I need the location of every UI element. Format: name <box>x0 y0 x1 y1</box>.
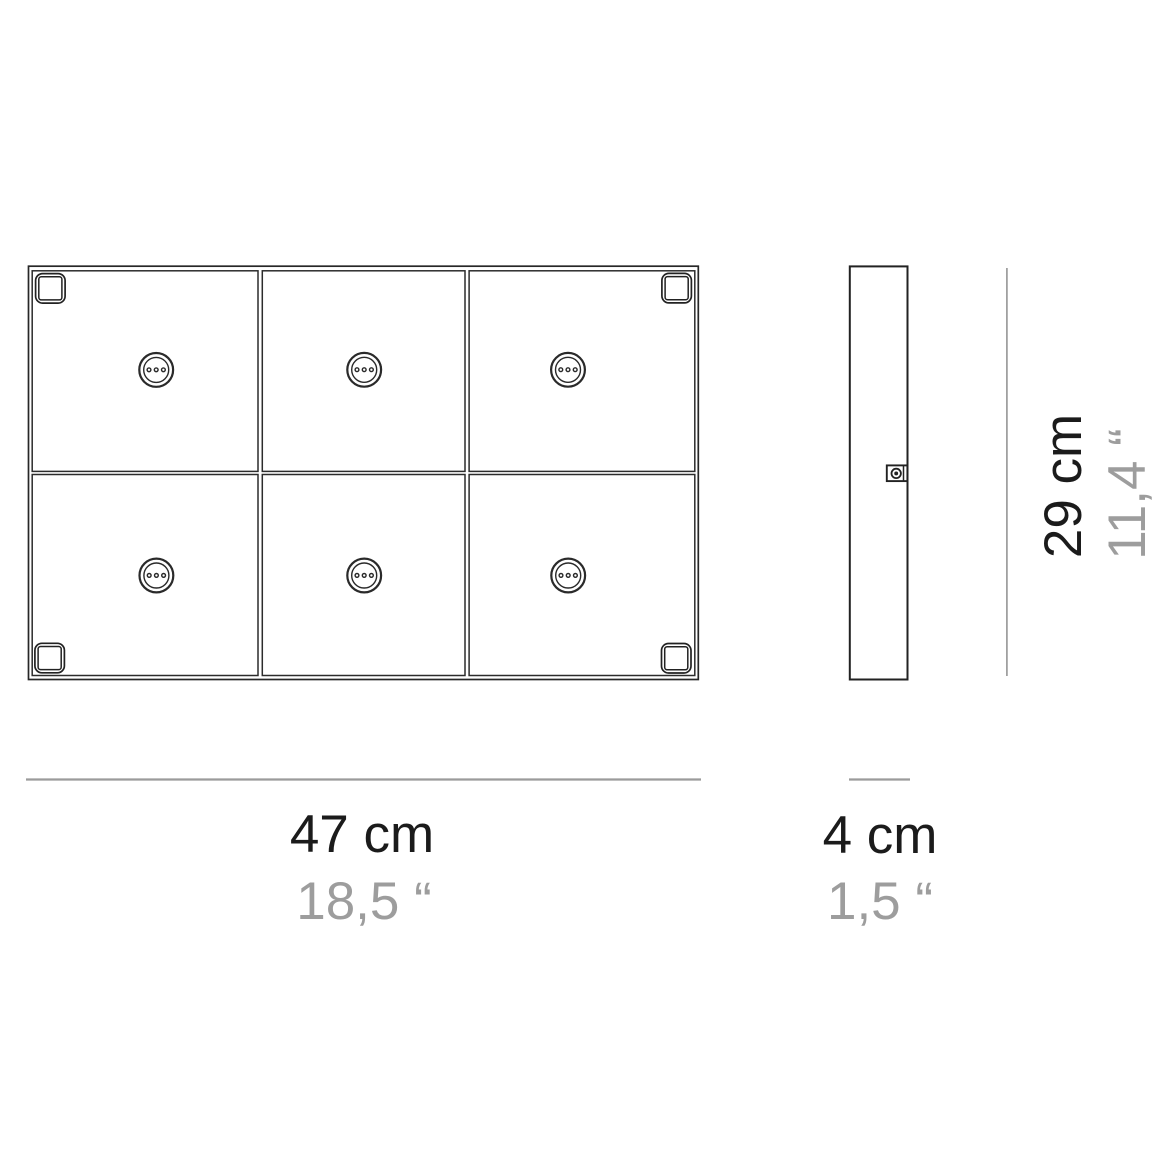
svg-text:11,4 “: 11,4 “ <box>1098 428 1157 560</box>
svg-text:4 cm: 4 cm <box>823 806 938 865</box>
svg-text:18,5 “: 18,5 “ <box>296 872 432 931</box>
svg-text:47 cm: 47 cm <box>290 805 434 864</box>
svg-text:29 cm: 29 cm <box>1034 414 1093 558</box>
svg-text:1,5 “: 1,5 “ <box>827 872 933 931</box>
